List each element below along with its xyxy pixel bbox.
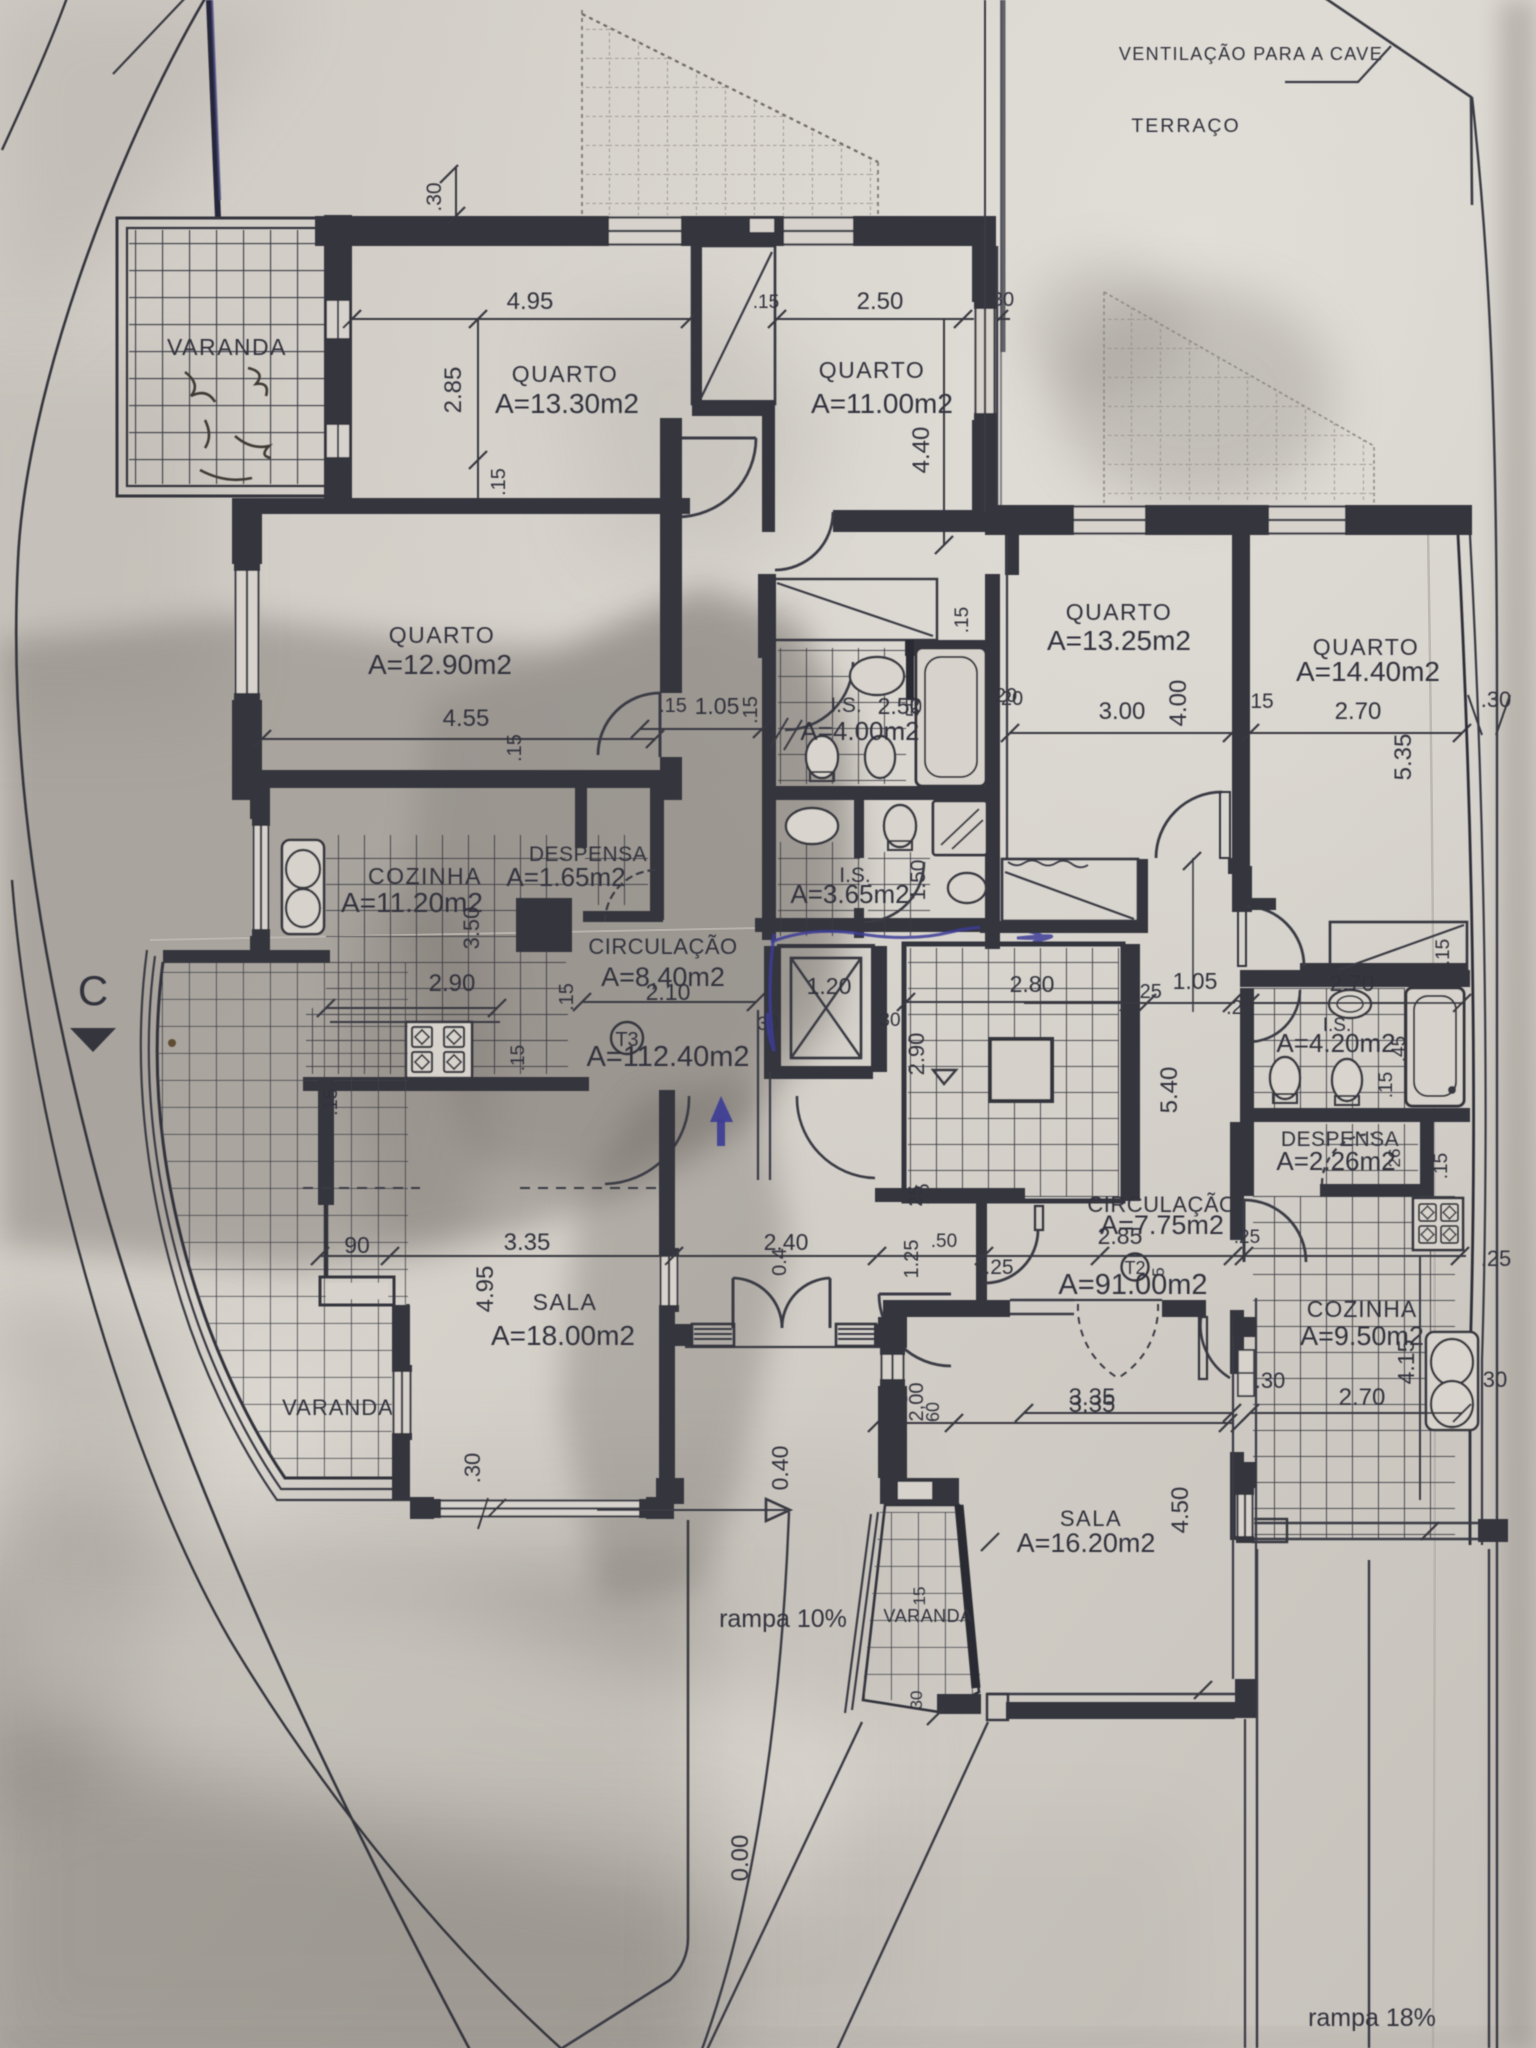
svg-text:.15: .15 (1376, 1072, 1397, 1098)
svg-text:.25: .25 (1481, 1246, 1512, 1271)
svg-text:A=18.00m2: A=18.00m2 (491, 1320, 635, 1351)
svg-text:.15: .15 (1431, 1153, 1452, 1179)
svg-text:2.70: 2.70 (1335, 698, 1382, 725)
svg-text:15: 15 (910, 1587, 929, 1606)
svg-text:VENTILAÇÃO PARA A CAVE: VENTILAÇÃO PARA A CAVE (1119, 43, 1383, 64)
svg-text:A=11.00m2: A=11.00m2 (811, 388, 953, 419)
svg-text:5.40: 5.40 (1156, 1067, 1183, 1114)
svg-text:2.70: 2.70 (1339, 1384, 1386, 1411)
svg-text:5.35: 5.35 (1390, 734, 1417, 781)
svg-text:1.05: 1.05 (695, 693, 740, 719)
svg-text:15: 15 (1250, 690, 1273, 713)
svg-text:I.S.: I.S. (830, 694, 862, 717)
svg-text:.15: .15 (504, 734, 526, 762)
svg-text:VARANDA: VARANDA (883, 1606, 972, 1626)
svg-text:4.50: 4.50 (1167, 1487, 1194, 1534)
svg-text:1.05: 1.05 (1173, 968, 1218, 994)
svg-text:55: 55 (903, 697, 923, 717)
svg-text:4.95: 4.95 (507, 288, 554, 315)
svg-text:QUARTO: QUARTO (512, 361, 619, 387)
svg-text:SALA: SALA (533, 1289, 598, 1315)
svg-text:COZINHA: COZINHA (1307, 1296, 1418, 1322)
svg-text:.15: .15 (1433, 939, 1454, 965)
svg-text:TERRAÇO: TERRAÇO (1131, 115, 1240, 137)
svg-text:60: 60 (923, 1402, 943, 1422)
svg-text:25: 25 (906, 1185, 927, 1206)
svg-text:QUARTO: QUARTO (1066, 599, 1173, 625)
svg-text:3.00: 3.00 (1099, 698, 1146, 725)
svg-text:A=14.40m2: A=14.40m2 (1296, 656, 1440, 687)
svg-text:2.70: 2.70 (1330, 970, 1375, 996)
svg-text:1.25: 1.25 (901, 1240, 923, 1279)
svg-text:0.00: 0.00 (727, 1835, 754, 1882)
svg-text:.15: .15 (952, 607, 973, 633)
svg-text:30: 30 (1483, 1367, 1507, 1392)
svg-text:VARANDA: VARANDA (282, 1395, 394, 1420)
svg-text:4.00: 4.00 (1165, 680, 1192, 727)
svg-text:A=12.90m2: A=12.90m2 (368, 649, 512, 680)
svg-text:.25: .25 (984, 1256, 1013, 1279)
svg-text:30: 30 (907, 1691, 926, 1710)
svg-text:VARANDA: VARANDA (167, 334, 287, 360)
svg-text:.15: .15 (556, 983, 578, 1011)
svg-text:COZINHA: COZINHA (368, 863, 482, 889)
svg-text:3.35: 3.35 (1069, 1391, 1116, 1418)
svg-text:3.50: 3.50 (459, 907, 484, 950)
svg-text:2.90: 2.90 (429, 970, 476, 997)
svg-text:2.90: 2.90 (904, 1033, 929, 1076)
svg-text:4.55: 4.55 (443, 705, 490, 732)
svg-text:QUARTO: QUARTO (819, 357, 926, 383)
svg-text:CIRCULAÇÃO: CIRCULAÇÃO (588, 934, 737, 959)
svg-text:26: 26 (1385, 1149, 1404, 1168)
svg-text:.50: .50 (931, 1231, 957, 1252)
svg-text:A=3.65m2: A=3.65m2 (790, 879, 909, 909)
svg-text:4.95: 4.95 (472, 1266, 499, 1313)
svg-text:A=91.00m2: A=91.00m2 (1058, 1269, 1207, 1301)
svg-text:A=112.40m2: A=112.40m2 (586, 1041, 749, 1073)
svg-text:2.50: 2.50 (857, 288, 904, 315)
svg-text:A=13.30m2: A=13.30m2 (495, 388, 639, 419)
svg-text:0.4: 0.4 (769, 1248, 791, 1276)
svg-text:4.40: 4.40 (908, 427, 935, 474)
svg-text:.30: .30 (423, 182, 446, 211)
svg-text:2.80: 2.80 (1010, 971, 1055, 997)
svg-text:.30: .30 (1255, 1368, 1286, 1393)
svg-text:.45: .45 (1389, 1036, 1410, 1062)
svg-text:.15: .15 (753, 292, 779, 313)
svg-text:.15: .15 (488, 468, 510, 496)
svg-text:4.15: 4.15 (1393, 1340, 1419, 1385)
svg-text:.15: .15 (320, 1088, 342, 1116)
svg-text:30: 30 (879, 1010, 900, 1031)
svg-text:A=1.65m2: A=1.65m2 (506, 862, 625, 892)
svg-text:C: C (78, 967, 108, 1014)
svg-text:rampa 18%: rampa 18% (1308, 2004, 1436, 2032)
svg-text:1.50: 1.50 (907, 860, 930, 901)
svg-text:.25: .25 (1234, 1227, 1260, 1248)
svg-text:.30: .30 (460, 1453, 485, 1484)
svg-text:A=13.25m2: A=13.25m2 (1047, 625, 1191, 656)
svg-text:2.85: 2.85 (440, 367, 467, 414)
svg-text:.30: .30 (1481, 687, 1512, 712)
svg-text:.15: .15 (659, 695, 687, 717)
svg-text:90: 90 (344, 1232, 370, 1258)
svg-text:A=16.20m2: A=16.20m2 (1017, 1528, 1156, 1558)
svg-text:.15: .15 (508, 1045, 529, 1071)
svg-text:3.35: 3.35 (504, 1229, 551, 1256)
svg-text:2.85: 2.85 (1098, 1223, 1143, 1249)
svg-text:0.40: 0.40 (767, 1446, 793, 1491)
svg-text:A=4.00m2: A=4.00m2 (800, 716, 919, 746)
svg-text:QUARTO: QUARTO (389, 622, 496, 648)
svg-text:1.20: 1.20 (807, 973, 852, 999)
svg-text:.15: .15 (740, 696, 762, 724)
svg-text:A=4.20m2: A=4.20m2 (1276, 1028, 1395, 1058)
svg-text:rampa 10%: rampa 10% (719, 1605, 847, 1633)
